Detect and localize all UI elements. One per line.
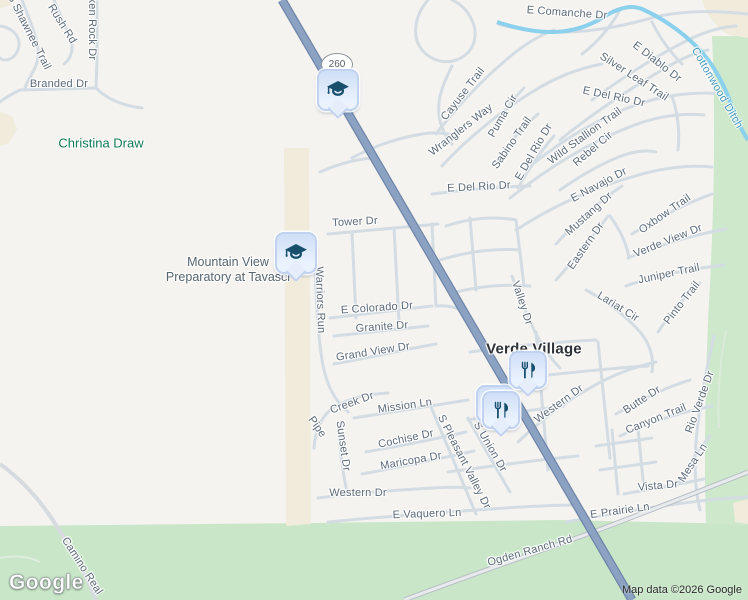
school-marker-260[interactable]	[317, 69, 359, 111]
street-label-silver-leaf-trail: Silver Leaf Trail	[598, 50, 671, 103]
restaurant-marker-front[interactable]	[482, 391, 520, 429]
street-label-mesa-ln: Mesa Ln	[676, 441, 710, 484]
street-label-s-shawnee-trail: S Shawnee Trail	[5, 0, 53, 72]
label-cottonwood-ditch: Cottonwood Ditch	[689, 45, 745, 130]
street-label-cochise-dr: Cochise Dr	[377, 427, 435, 450]
restaurant-icon	[517, 359, 539, 381]
street-label-juniper-trail: Juniper Trail	[637, 262, 701, 287]
street-label-eastern-dr: Eastern Dr	[565, 220, 606, 272]
restaurant-marker-north[interactable]	[509, 351, 547, 389]
restaurant-icon	[490, 399, 512, 421]
street-label-e-prairie-ln: E Prairie Ln	[590, 501, 651, 521]
street-label-tower-dr: Tower Dr	[332, 215, 378, 229]
street-label-puma-cir: Puma Cir	[486, 92, 520, 139]
street-label-wranglers-way: Wranglers Way	[427, 102, 495, 159]
street-label-butte-dr: Butte Dr	[621, 384, 663, 417]
map-canvas[interactable]: 260 S Shawnee TrailRush RdBroken Rock Dr…	[0, 0, 748, 600]
street-label-cayuse-trail: Cayuse Trail	[439, 65, 488, 122]
street-label-western-dr-ne: Western Dr	[532, 382, 586, 425]
street-label-pinto-trail: Pinto Trail	[662, 279, 703, 327]
street-label-e-colorado-dr: E Colorado Dr	[341, 299, 414, 316]
street-label-mission-ln: Mission Ln	[377, 396, 433, 415]
street-label-canyon-trail: Canyon Trail	[624, 401, 688, 436]
street-label-branded-dr: Branded Dr	[30, 78, 88, 90]
graduation-cap-icon	[326, 78, 350, 102]
street-label-e-del-rio-dr-west: E Del Rio Dr	[513, 121, 555, 182]
street-label-oxbow-trail: Oxbow Trail	[637, 192, 693, 236]
street-label-e-del-rio-dr-north: E Del Rio Dr	[582, 85, 647, 110]
street-label-e-navajo-dr: E Navajo Dr	[569, 165, 629, 204]
label-mountain-view-preparatory-at-tavasci: Mountain View Preparatory at Tavasci	[166, 255, 290, 285]
street-label-s-pleasant-valley-dr: S Pleasant Valley Dr	[435, 413, 493, 511]
street-label-maricopa-dr: Maricopa Dr	[379, 450, 442, 473]
street-label-e-diablo-dr: E Diablo Dr	[630, 39, 683, 84]
street-label-e-vaquero-ln: E Vaquero Ln	[392, 507, 461, 521]
street-label-vista-dr: Vista Dr	[637, 478, 678, 493]
street-label-sabino-trail: Sabino Trail	[490, 115, 535, 171]
street-label-wild-stallion-trail: Wild Stallion Trail	[546, 105, 624, 167]
street-label-verde-view-dr: Verde View Dr	[632, 222, 704, 260]
graduation-cap-icon	[284, 241, 308, 265]
street-label-ogden-ranch-rd: Ogden Ranch Rd	[486, 533, 574, 569]
label-christina-draw: Christina Draw	[58, 136, 143, 151]
google-logo[interactable]: Google	[9, 571, 84, 595]
street-label-sunset-dr: Sunset Dr	[334, 420, 353, 472]
school-marker-tavasci[interactable]	[275, 232, 317, 274]
street-label-rebel-cir: Rebel Cir	[571, 129, 615, 169]
map-attribution: Map data ©2026 Google	[622, 584, 742, 596]
street-label-lariat-cir: Lariat Cir	[595, 290, 641, 325]
street-label-valley-dr: Valley Dr	[509, 279, 535, 326]
street-label-broken-rock-dr: Broken Rock Dr	[86, 0, 98, 60]
street-label-mustang-dr: Mustang Dr	[563, 190, 615, 238]
street-label-western-dr-sw: Western Dr	[329, 487, 386, 499]
street-label-rush-rd: Rush Rd	[45, 2, 79, 46]
street-label-rio-verde-dr: Rio Verde Dr	[683, 369, 717, 435]
street-label-pipe-creek-dr-b: Creek Dr	[329, 390, 376, 417]
street-label-grand-view-dr: Grand View Dr	[335, 340, 411, 364]
street-label-e-comanche-dr: E Comanche Dr	[526, 4, 607, 22]
street-label-warriors-run: Warriors Run	[313, 266, 327, 333]
street-label-granite-dr: Granite Dr	[355, 319, 408, 335]
street-label-pipe-creek-dr-a: Pipe	[306, 414, 329, 440]
label-layer: S Shawnee TrailRush RdBroken Rock DrBran…	[0, 0, 748, 600]
street-label-e-del-rio-dr-south: E Del Rio Dr	[447, 179, 511, 194]
